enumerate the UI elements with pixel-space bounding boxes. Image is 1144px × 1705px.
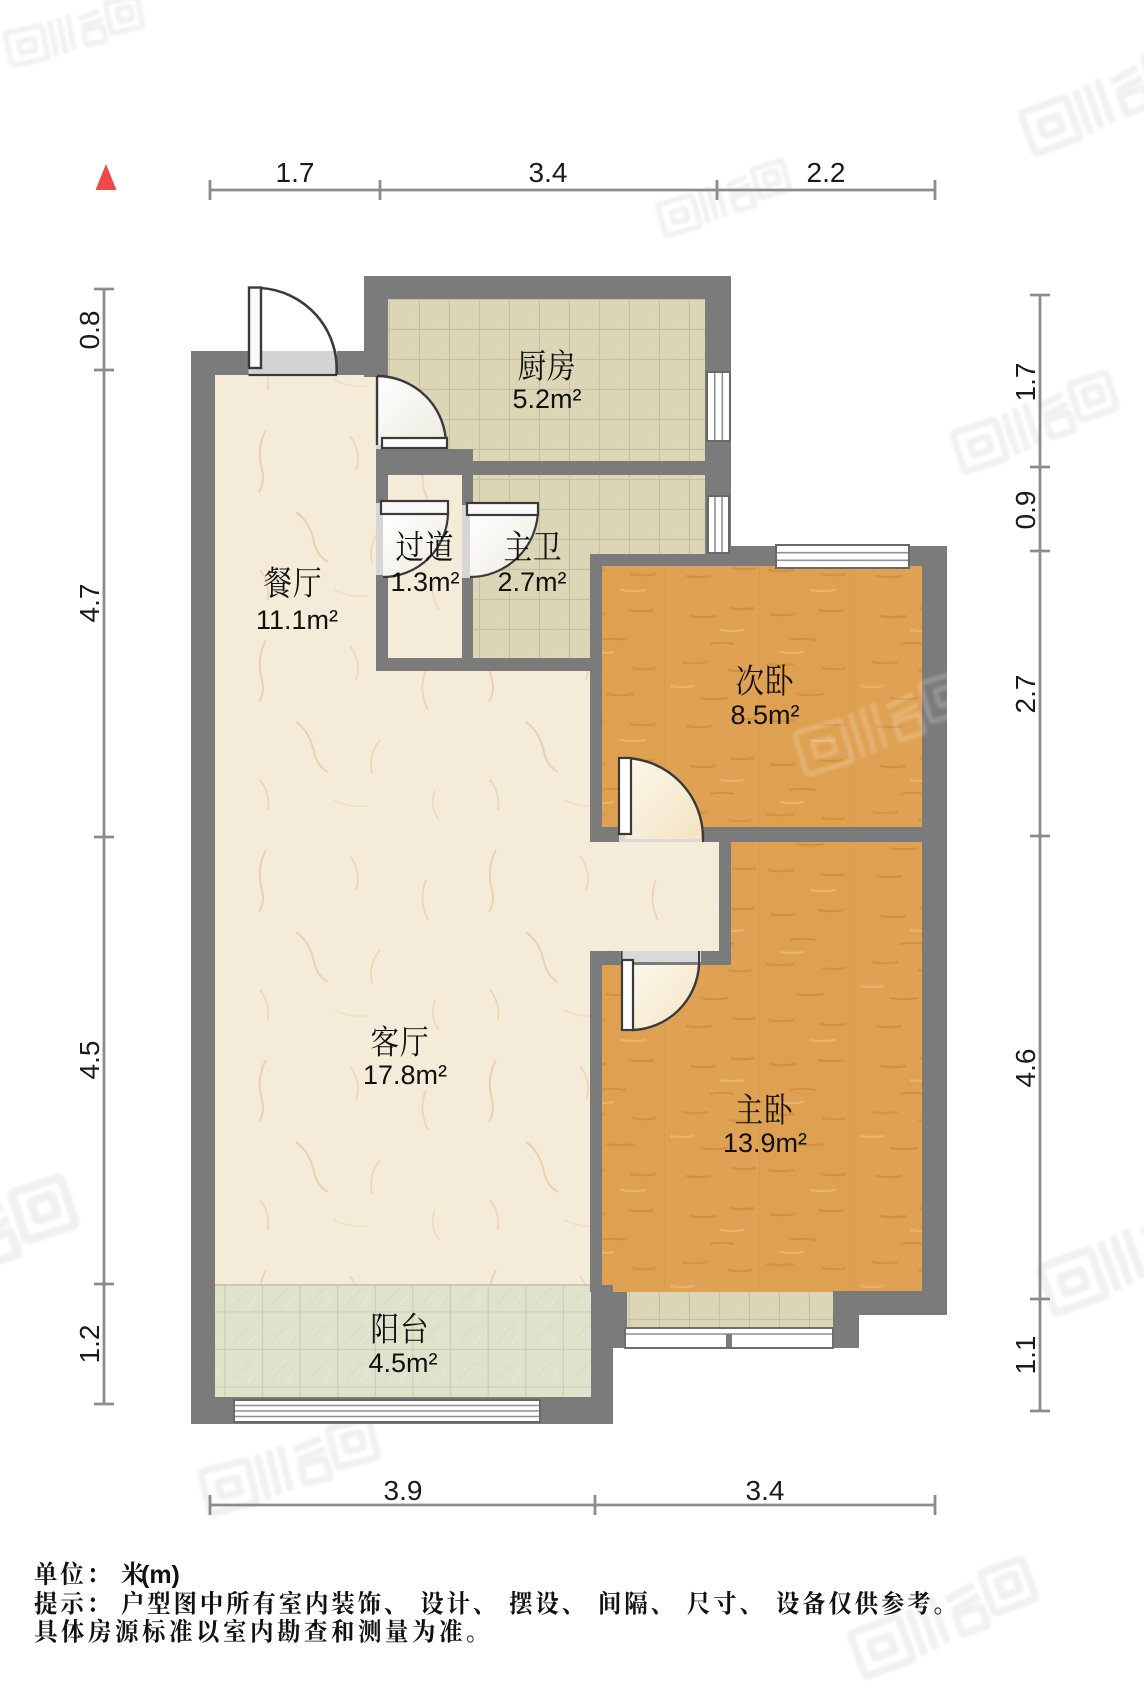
svg-text:4.5: 4.5: [74, 1041, 105, 1080]
svg-text:13.9m²: 13.9m²: [723, 1128, 807, 1158]
svg-text:0.9: 0.9: [1010, 491, 1041, 530]
svg-text:4.5m²: 4.5m²: [368, 1348, 437, 1378]
svg-text:11.1m²: 11.1m²: [256, 605, 338, 635]
svg-text:5.2m²: 5.2m²: [512, 384, 581, 414]
svg-text:0.8: 0.8: [74, 311, 105, 350]
svg-text:1.2: 1.2: [74, 1325, 105, 1364]
svg-text:3.4: 3.4: [746, 1475, 785, 1506]
svg-text:3.9: 3.9: [384, 1475, 423, 1506]
svg-text:1.7: 1.7: [1010, 363, 1041, 402]
svg-text:2.2: 2.2: [807, 157, 846, 188]
svg-text:2.7m²: 2.7m²: [497, 567, 566, 597]
svg-text:4.6: 4.6: [1010, 1049, 1041, 1088]
svg-text:3.4: 3.4: [529, 157, 568, 188]
svg-text:1.3m²: 1.3m²: [390, 567, 459, 597]
svg-text:8.5m²: 8.5m²: [730, 700, 799, 730]
svg-text:1.7: 1.7: [276, 157, 315, 188]
svg-text:17.8m²: 17.8m²: [363, 1060, 447, 1090]
svg-text:(m): (m): [141, 1561, 180, 1589]
svg-text:4.7: 4.7: [74, 584, 105, 623]
svg-text:1.1: 1.1: [1010, 1336, 1041, 1375]
svg-text:2.7: 2.7: [1010, 675, 1041, 714]
